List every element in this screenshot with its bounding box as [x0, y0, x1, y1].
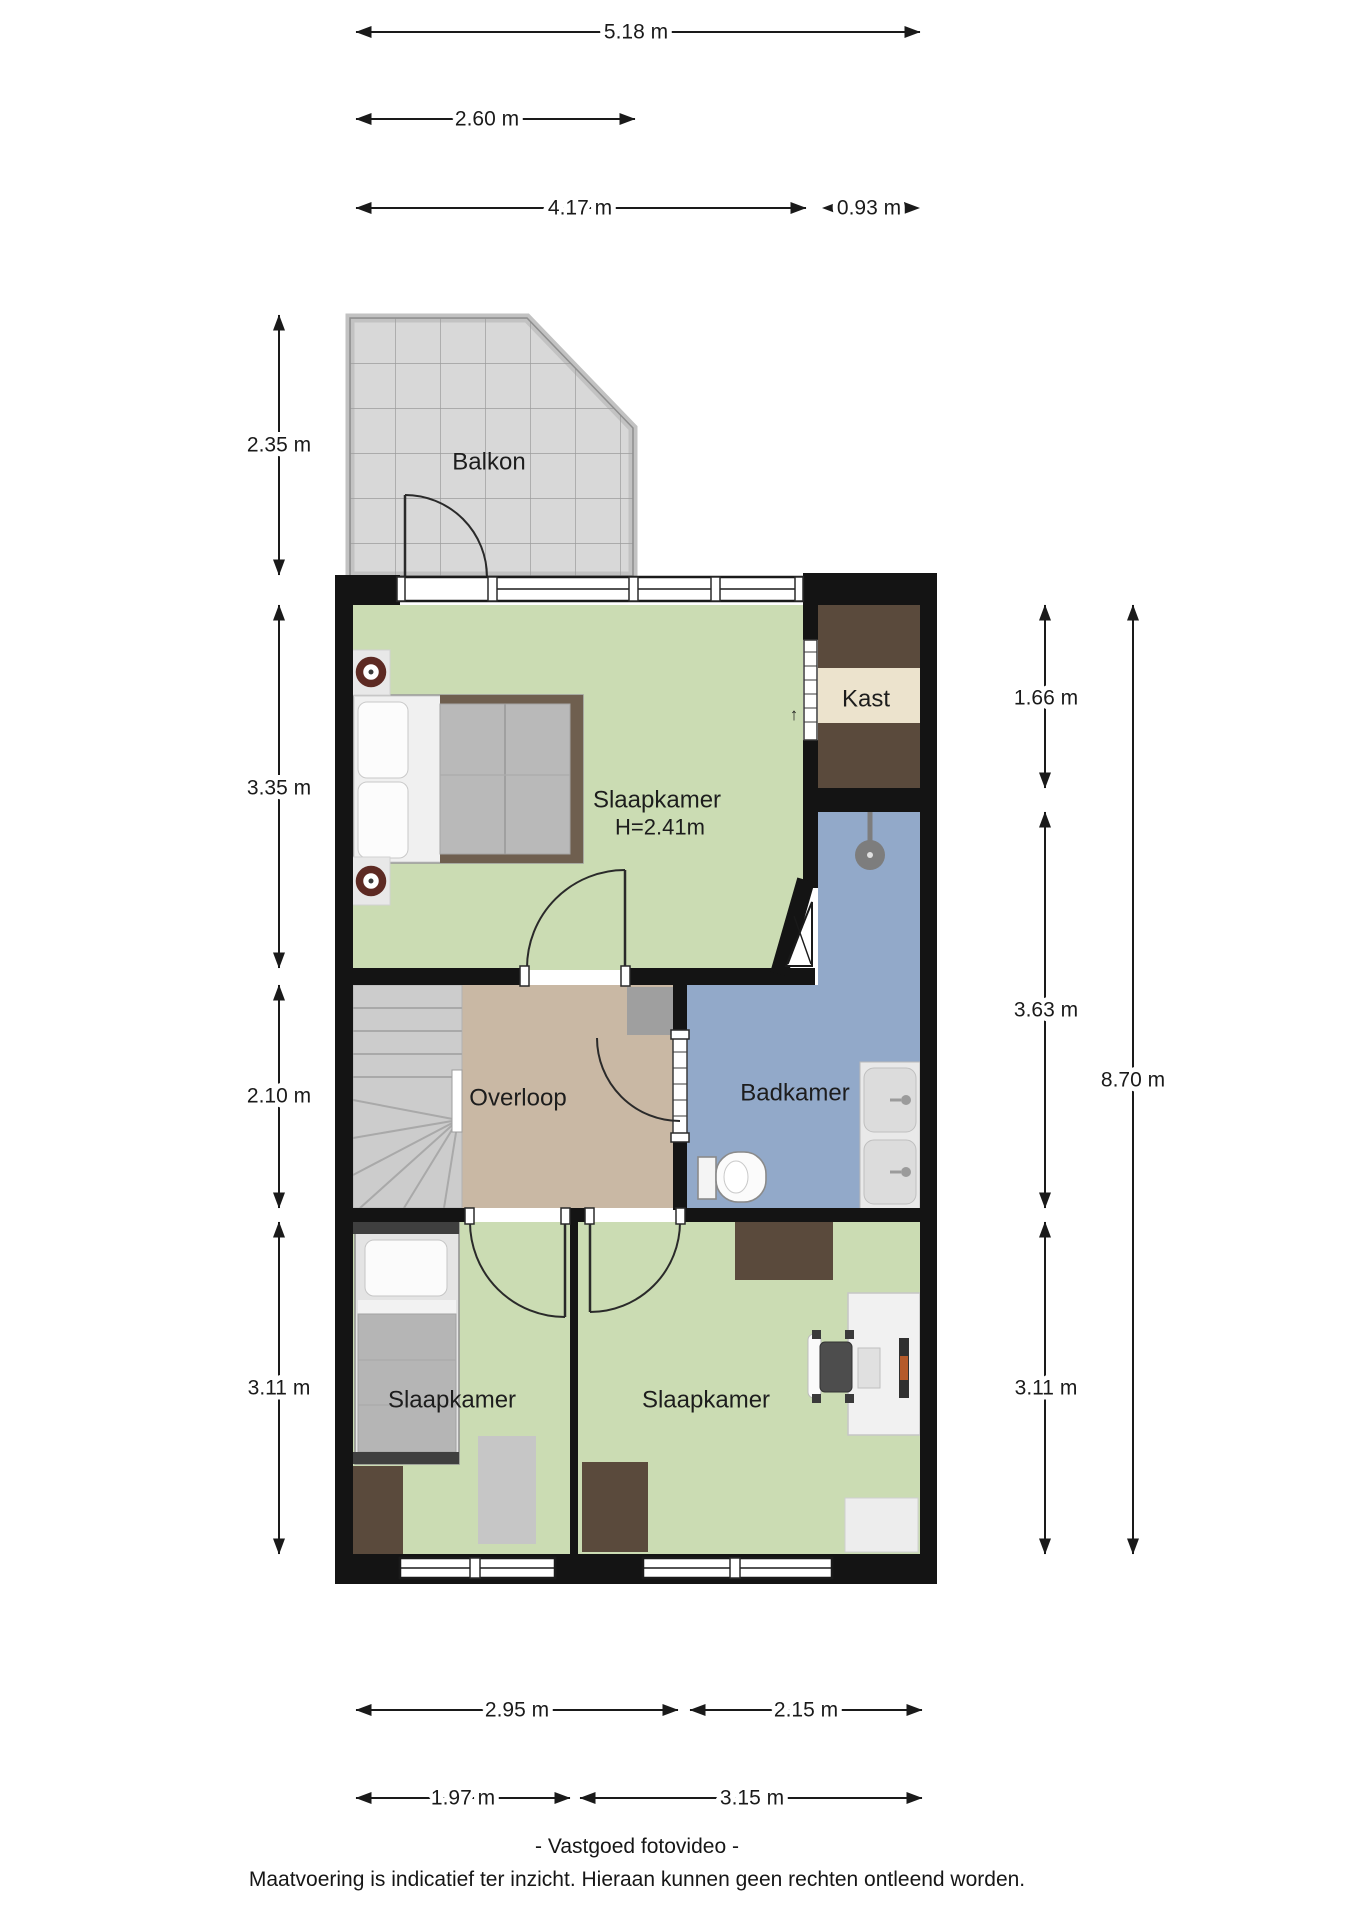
speaker-icon	[352, 650, 390, 695]
wall-kast-bathroom	[803, 788, 937, 812]
wardrobe	[735, 1222, 833, 1280]
chair-seat	[820, 1342, 852, 1392]
chair-back	[808, 1334, 821, 1398]
balcony: Balkon	[350, 318, 633, 577]
dimension-right-total: 8.70 m	[1101, 1069, 1165, 1092]
staircase	[353, 985, 462, 1208]
floorplan-page: Balkon	[0, 0, 1358, 1920]
wall-right	[920, 573, 937, 1584]
dimension-top-kast: 0.93 m	[837, 197, 901, 220]
toilet-icon	[698, 1152, 766, 1202]
room-label-slaapkamer-right: Slaapkamer	[642, 1387, 770, 1414]
balcony-tile-grid	[350, 318, 633, 576]
wall-top-kast	[803, 573, 937, 605]
double-bed	[353, 695, 583, 863]
bedroom-left-rug	[478, 1436, 536, 1544]
washbasin-icon	[860, 1062, 920, 1210]
dimension-top-balcony: 2.60 m	[455, 108, 519, 131]
room-label-kast: Kast	[842, 686, 890, 713]
kast-door-direction-arrow: ↑	[790, 705, 799, 724]
stair-handrail	[452, 1070, 462, 1132]
room-label-slaapkamer-left: Slaapkamer	[388, 1387, 516, 1414]
dimension-top-bedroom: 4.17 m	[548, 197, 612, 220]
single-bed	[353, 1222, 459, 1464]
dimension-left-balcony: 2.35 m	[247, 434, 311, 457]
room-label-balkon: Balkon	[452, 449, 525, 476]
dimension-top-total: 5.18 m	[604, 21, 668, 44]
wall-left	[335, 575, 353, 1584]
dimension-right-badkamer: 3.63 m	[1014, 999, 1078, 1022]
speaker-icon	[352, 857, 390, 905]
dimension-bottom-overloop: 2.95 m	[485, 1699, 549, 1722]
room-height-label: H=2.41m	[615, 815, 705, 840]
room-label-overloop: Overloop	[469, 1085, 566, 1112]
cabinet-white	[845, 1498, 918, 1552]
floorplan-drawing: Balkon	[0, 0, 1358, 1920]
room-label-slaapkamer-main: Slaapkamer	[593, 787, 721, 814]
dimension-left-bedrooms: 3.11 m	[248, 1377, 311, 1400]
footer-disclaimer: Maatvoering is indicatief ter inzicht. H…	[249, 1868, 1025, 1891]
landing-mat	[627, 987, 675, 1035]
wall-top-left-block	[335, 575, 400, 605]
dimension-left-overloop: 2.10 m	[247, 1085, 311, 1108]
room-label-badkamer: Badkamer	[740, 1080, 849, 1107]
dresser	[353, 1466, 403, 1554]
footer: - Vastgoed fotovideo - Maatvoering is in…	[249, 1835, 1025, 1891]
kast-sliding-door	[804, 640, 817, 740]
dimension-bottom-bedroom-left: 1.97 m	[431, 1787, 495, 1810]
keyboard-icon	[858, 1348, 880, 1388]
dimension-right-kast: 1.66 m	[1014, 687, 1078, 710]
wall-bedroom-divider	[570, 1222, 578, 1554]
footer-credit: - Vastgoed fotovideo -	[535, 1835, 739, 1858]
dimension-right-bedroom: 3.11 m	[1015, 1377, 1078, 1400]
cabinet-brown	[582, 1462, 648, 1552]
dimension-left-bedroom: 3.35 m	[247, 777, 311, 800]
dimension-bottom-badkamer: 2.15 m	[774, 1699, 838, 1722]
dimension-bottom-bedroom-right: 3.15 m	[720, 1787, 784, 1810]
